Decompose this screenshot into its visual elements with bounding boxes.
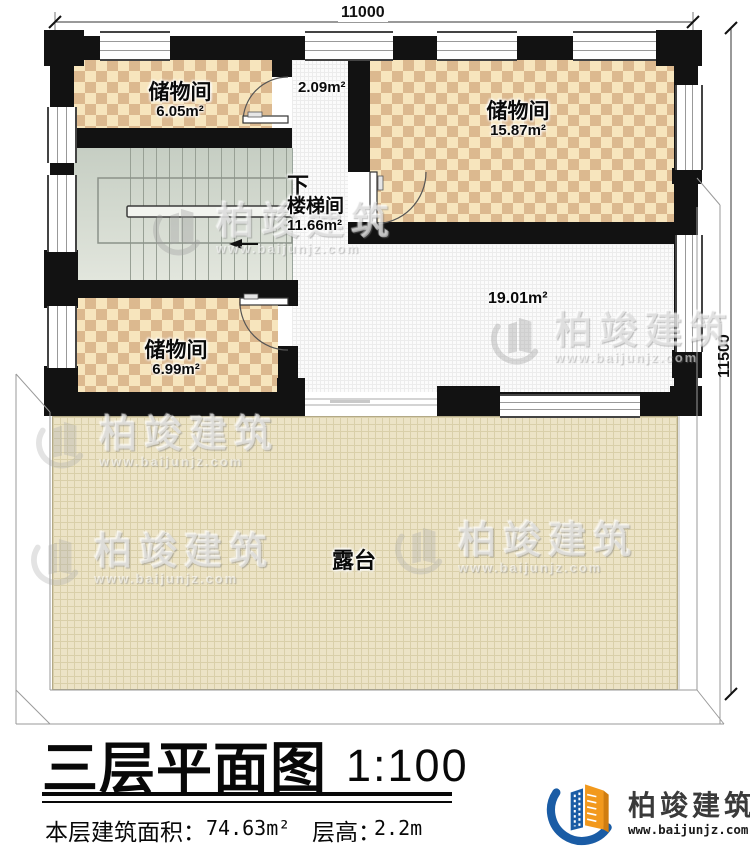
brand-name: 柏竣建筑 [628,784,750,824]
door-storage-top-right [370,172,426,224]
floor-height-label: 层高： [312,813,381,847]
label-storage-top-right: 储物间 15.87m² [448,101,588,141]
label-terrace: 露台 [332,543,376,575]
floor-area-label: 本层建筑面积： [45,813,206,847]
door-storage-bottom-left [240,294,288,350]
floor-plan-page: 11000 11500 柏竣建筑www.baijunjz.com 柏竣建筑www… [0,0,750,849]
dimension-width-label: 11000 [338,4,388,22]
label-storage-top-left: 储物间 6.05m² [110,82,250,122]
label-hallway-area: 2.09m² [298,79,346,98]
brand-url: www.baijunjz.com [628,822,748,837]
label-open-area: 19.01m² [488,289,548,309]
title-underline-thin [42,801,452,803]
door-leaf-sliding [330,400,370,403]
stair-handrail [127,206,294,217]
title-underline-thick [42,792,452,796]
floor-height-value: 2.2m [374,816,422,840]
brand-logo-icon [544,776,622,846]
drawing-scale: 1:100 [346,740,469,792]
label-storage-bottom-left: 储物间 6.99m² [106,340,246,380]
stair-arrow-head [229,239,242,249]
floor-area-value: 74.63m² [206,816,290,840]
label-stairwell: 楼梯间 11.66m² [287,197,344,236]
terrace-parapet-outline [16,178,724,724]
dimension-height-label: 11500 [716,313,734,399]
